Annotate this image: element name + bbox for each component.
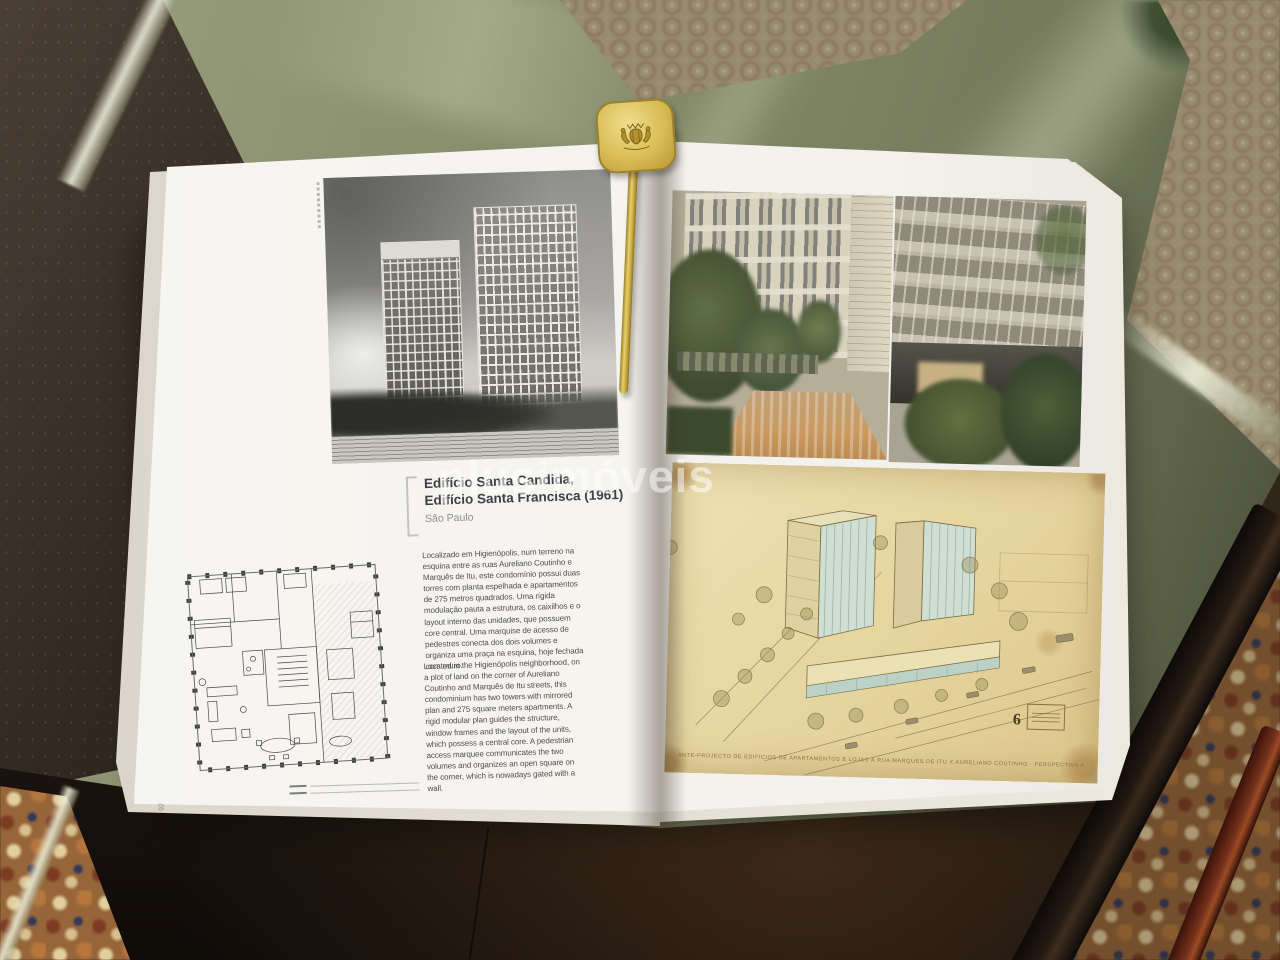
bw-photo-two-towers [323,169,619,464]
architect-stamp [1027,704,1066,731]
article-subtitle: São Paulo [425,512,474,526]
perspective-drawing-sheet: ANTE-PROJECTO DE EDIFICIOS DE APARTAMENT… [664,462,1105,783]
watermark-text: plusimóveis [438,449,715,505]
color-photo-courtyard [666,190,894,460]
paved-walkway [714,389,888,459]
photo-credit-vertical [316,182,320,228]
title-bracket [406,476,419,536]
page-number-right: 93 [1089,775,1097,782]
plan-caption-line [290,787,420,795]
tree [734,308,807,394]
bookmark-paddle [595,97,678,174]
drawing-number: 6 [1013,711,1021,729]
page-number-left: 92 [158,803,165,811]
building-side-tower [847,195,894,373]
coat-of-arms-icon [610,114,663,157]
paragraph-portuguese: Localizado em Higienópolis, num terreno … [422,545,586,672]
photo-of-open-book-on-glass-table: Edifício Santa Candida, Edifício Santa F… [0,0,1280,960]
right-page-content: ANTE-PROJECTO DE EDIFICIOS DE APARTAMENT… [646,134,1134,836]
pergola [677,351,819,373]
paragraph-english: Located in the Higienópolis neighborhood… [424,656,588,794]
tower-cap [381,241,459,261]
color-photo-facade-detail [889,196,1087,467]
birdseye-perspective [664,462,1105,783]
floor-plan-drawing [170,549,404,789]
